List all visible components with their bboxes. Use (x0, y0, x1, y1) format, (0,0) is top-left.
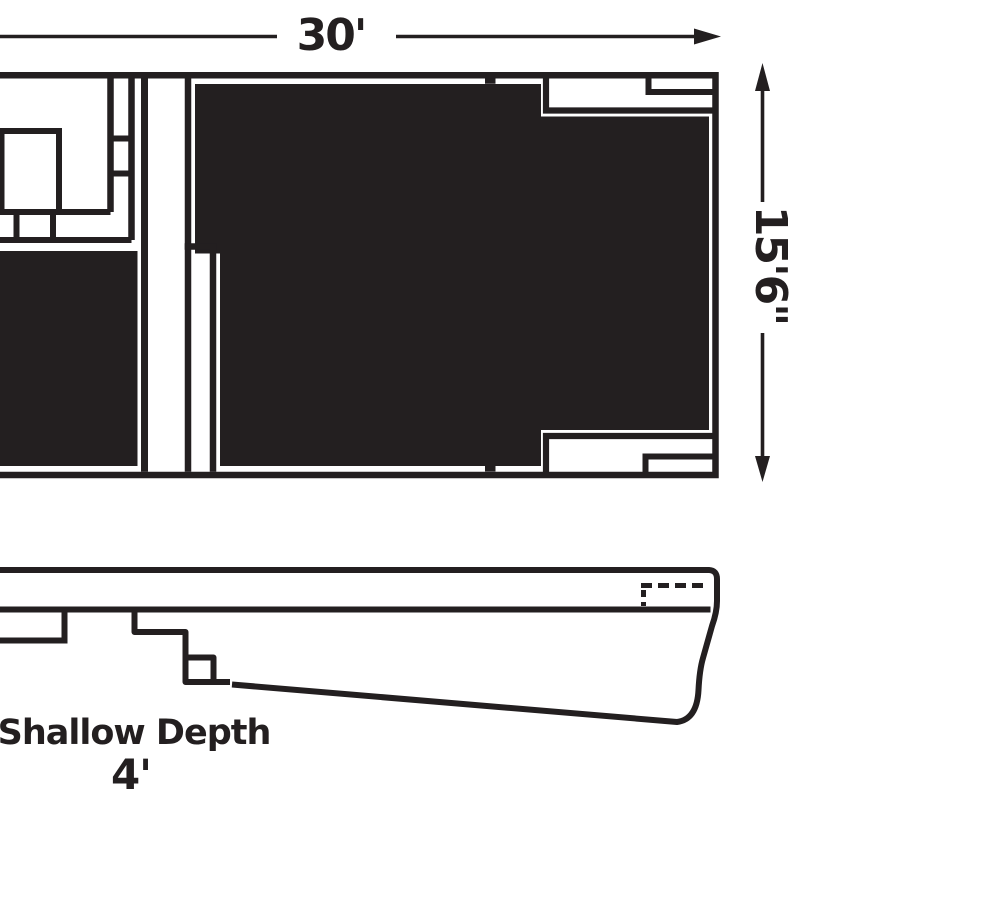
plan-view (0, 75, 716, 475)
entry-ledge-dividers (17, 212, 54, 240)
profile-step-box (189, 658, 214, 681)
width-dimension: 15'6" (745, 63, 796, 482)
arrow-down-icon (755, 456, 770, 482)
length-dimension: 30' (0, 10, 721, 61)
water-fill-lower-left (0, 251, 138, 466)
profile-left-bench (0, 611, 65, 641)
arrow-up-icon (755, 63, 770, 91)
wall-fitting-top (485, 78, 496, 84)
shallow-depth-label: Shallow Depth 4' (0, 713, 270, 799)
profile-shell (0, 570, 717, 722)
width-label: 15'6" (745, 206, 796, 324)
pool-diagram-page: 30' 15'6" Shallow Depth 4' (0, 0, 1000, 900)
arrow-right-icon (694, 29, 721, 45)
pool-dimension-diagram: 30' 15'6" Shallow Depth 4' (0, 0, 1000, 900)
side-profile-view (0, 570, 717, 722)
water-fill-main (195, 84, 709, 466)
wall-fitting-bottom (485, 466, 496, 472)
depth-value: 4' (111, 750, 151, 799)
length-label: 30' (297, 10, 366, 61)
depth-title: Shallow Depth (0, 713, 270, 753)
entry-box (2, 131, 60, 212)
